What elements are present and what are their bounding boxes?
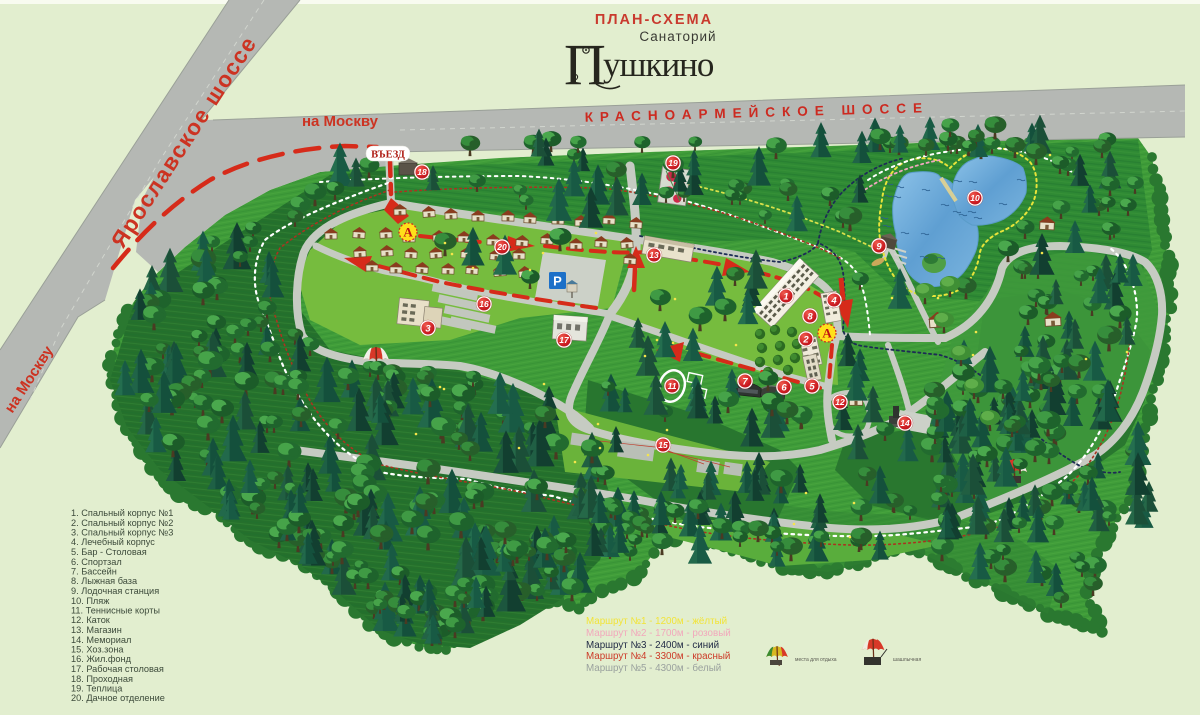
svg-text:П: П — [564, 32, 606, 97]
svg-text:8: 8 — [807, 311, 813, 322]
svg-text:Маршрут №4 - 3300м - красный: Маршрут №4 - 3300м - красный — [586, 651, 730, 662]
svg-text:ушкино: ушкино — [603, 45, 714, 84]
svg-text:7: 7 — [742, 376, 748, 387]
svg-text:12. Каток: 12. Каток — [71, 615, 111, 625]
svg-text:9: 9 — [876, 241, 882, 252]
svg-text:1. Спальный корпус №1: 1. Спальный корпус №1 — [71, 508, 173, 518]
svg-text:11: 11 — [668, 381, 677, 391]
svg-text:A: A — [822, 326, 832, 341]
svg-text:13: 13 — [649, 250, 659, 260]
svg-text:6: 6 — [781, 382, 787, 393]
svg-text:5. Бар - Столовая: 5. Бар - Столовая — [71, 547, 147, 557]
svg-text:Маршрут №5 - 4300м - белый: Маршрут №5 - 4300м - белый — [586, 663, 721, 674]
svg-text:20. Дачное отделение: 20. Дачное отделение — [71, 693, 165, 703]
svg-text:7. Бассейн: 7. Бассейн — [71, 567, 117, 577]
svg-text:3. Спальный корпус №3: 3. Спальный корпус №3 — [71, 528, 173, 538]
svg-text:Маршрут №3 - 2400м - синий: Маршрут №3 - 2400м - синий — [586, 640, 719, 651]
svg-text:14: 14 — [900, 418, 910, 428]
svg-text:6. Спортзал: 6. Спортзал — [71, 557, 122, 567]
svg-text:10. Пляж: 10. Пляж — [71, 596, 110, 606]
svg-text:P: P — [553, 274, 562, 289]
svg-text:16: 16 — [479, 299, 489, 309]
svg-text:12: 12 — [835, 397, 845, 407]
svg-text:18. Проходная: 18. Проходная — [71, 674, 133, 684]
svg-text:ПЛАН-СХЕМА: ПЛАН-СХЕМА — [595, 12, 713, 28]
svg-text:A: A — [403, 225, 413, 240]
svg-text:места для отдыха: места для отдыха — [795, 657, 837, 663]
svg-text:5: 5 — [809, 381, 815, 392]
svg-text:4: 4 — [830, 295, 837, 306]
svg-text:ВЪЕЗД: ВЪЕЗД — [371, 150, 406, 161]
svg-text:на Москву: на Москву — [302, 113, 379, 130]
svg-text:2. Спальный корпус №2: 2. Спальный корпус №2 — [71, 518, 173, 528]
svg-text:8. Лыжная база: 8. Лыжная база — [71, 576, 138, 586]
svg-text:11. Теннисные корты: 11. Теннисные корты — [71, 606, 160, 616]
svg-text:1: 1 — [783, 291, 788, 302]
svg-text:Маршрут №1 - 1200м - жёлтый: Маршрут №1 - 1200м - жёлтый — [586, 616, 727, 627]
svg-text:Санаторий: Санаторий — [639, 29, 716, 44]
svg-text:14. Мемориал: 14. Мемориал — [71, 635, 131, 645]
svg-text:17. Рабочая столовая: 17. Рабочая столовая — [71, 664, 164, 674]
svg-text:15. Хоз.зона: 15. Хоз.зона — [71, 645, 124, 655]
svg-text:4. Лечебный корпус: 4. Лечебный корпус — [71, 537, 155, 547]
svg-text:15: 15 — [658, 440, 668, 450]
svg-text:20: 20 — [496, 242, 507, 252]
svg-text:2: 2 — [802, 334, 809, 345]
svg-text:шашлычная: шашлычная — [893, 657, 921, 663]
svg-text:18: 18 — [417, 167, 427, 177]
svg-text:10: 10 — [970, 193, 980, 203]
svg-text:17: 17 — [559, 335, 570, 345]
svg-text:3: 3 — [425, 323, 431, 334]
svg-text:16. Жил.фонд: 16. Жил.фонд — [71, 654, 132, 664]
svg-text:Маршрут №2 - 1700м - розовый: Маршрут №2 - 1700м - розовый — [586, 628, 731, 639]
svg-text:9. Лодочная станция: 9. Лодочная станция — [71, 586, 159, 596]
svg-text:19: 19 — [668, 158, 678, 168]
svg-text:13. Магазин: 13. Магазин — [71, 625, 122, 635]
svg-text:19. Теплица: 19. Теплица — [71, 684, 123, 694]
